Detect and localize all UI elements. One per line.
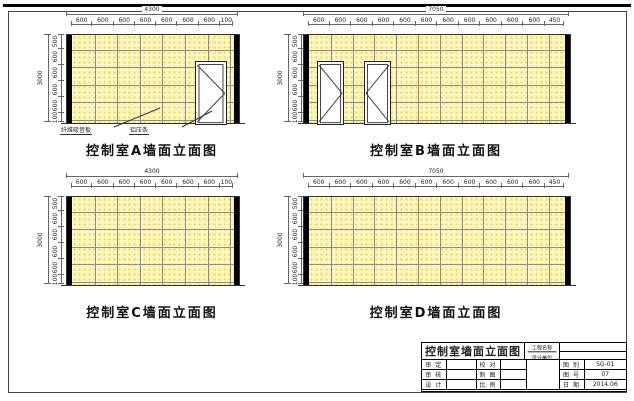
dim-segment: 600: [199, 15, 220, 24]
dim-segment-label: 600: [442, 179, 453, 186]
grid-line: [418, 197, 419, 285]
dim-segment: 600: [459, 177, 481, 186]
grid-line: [353, 35, 354, 123]
panel-area: [309, 35, 565, 123]
title-block-grid: 审 定 校 对 图 别 SG-01 审 核 制 图 图 号 07 设 计 比 例…: [422, 360, 626, 390]
dim-segment: 500: [291, 34, 301, 49]
grid-line: [309, 50, 565, 51]
grid-line: [309, 67, 565, 68]
annotation-acoustic-panel: 纤维吸音板: [60, 127, 92, 135]
dim-width-total: 4300: [66, 6, 238, 15]
dim-segment: 450: [545, 15, 564, 24]
dim-segment: 600: [502, 177, 524, 186]
dim-segment-label: 600: [356, 179, 367, 186]
dim-segment: 600: [308, 177, 330, 186]
dim-height-total-label: 3000: [37, 70, 44, 85]
dim-segment-label: 600: [399, 17, 410, 24]
dim-segment-label: 100: [53, 112, 60, 123]
dim-segment-label: 600: [118, 17, 129, 24]
dim-segment-label: 600: [529, 179, 540, 186]
elevation-a-caption: 控制室A墙面立面图: [66, 140, 238, 159]
left-segment-dims: 500600600600600100: [291, 196, 302, 284]
designed-value: [446, 380, 476, 390]
grid-line: [396, 197, 397, 285]
dim-segment-label: 600: [204, 179, 215, 186]
dim-segment-label: 600: [182, 179, 193, 186]
dim-segment-label: 600: [356, 17, 367, 24]
title-block-project-labels: 工程名称 设计单位: [525, 343, 560, 359]
dim-segment: 600: [291, 227, 301, 243]
grid-line: [527, 197, 528, 285]
dim-segment: 600: [416, 177, 438, 186]
dim-segment: 600: [156, 177, 177, 186]
dim-segment: 600: [437, 15, 459, 24]
date-value: 2014.06: [584, 380, 626, 390]
dim-segment-label: 600: [399, 179, 410, 186]
dim-segment-label: 600: [161, 17, 172, 24]
grid-line: [72, 229, 234, 230]
dim-segment-label: 600: [293, 100, 300, 111]
dim-segment-label: 600: [53, 100, 60, 111]
dim-height-total: 3000: [38, 196, 49, 284]
dim-segment-label: 600: [161, 179, 172, 186]
dim-segment-label: 600: [293, 83, 300, 94]
approved-label: 审 定: [422, 360, 446, 370]
dim-segment: 600: [394, 177, 416, 186]
date-label: 日 期: [559, 380, 584, 390]
dim-segment-label: 600: [182, 17, 193, 24]
dim-segment: 600: [480, 15, 502, 24]
dim-width-total: 7050: [303, 168, 569, 177]
dim-height-total-label: 3000: [277, 70, 284, 85]
wall-elevation-view: [303, 196, 571, 286]
dim-segment: 500: [51, 196, 61, 211]
drawing-no-value: 07: [584, 370, 626, 380]
drawing-type-value: SG-01: [584, 360, 626, 370]
dim-segment-label: 600: [53, 67, 60, 78]
dim-segment-label: 600: [97, 17, 108, 24]
dim-segment: 600: [92, 15, 113, 24]
dim-segment-label: 500: [53, 198, 60, 209]
panel-area: [309, 197, 565, 285]
dim-segment: 600: [459, 15, 481, 24]
grid-line: [309, 282, 565, 283]
elevation-b-caption: 控制室B墙面立面图: [303, 140, 569, 159]
dim-segment-label: 100: [221, 17, 232, 24]
grid-line: [309, 212, 565, 213]
dim-segment: 600: [308, 15, 330, 24]
annotation-aluminum-strip: 铝压条: [129, 127, 149, 135]
design-unit-label: 设计单位: [528, 354, 557, 362]
dim-width-total-label: 7050: [426, 168, 445, 175]
dim-segment: 600: [51, 243, 61, 259]
project-name-value: [560, 343, 626, 352]
grid-line: [95, 197, 96, 285]
dim-segment: 600: [373, 15, 395, 24]
checked-label: 校 对: [476, 360, 500, 370]
dim-segment-label: 600: [293, 245, 300, 256]
dim-segment: 100: [291, 275, 301, 284]
top-segment-dims: 600600600600600600600100: [71, 177, 233, 187]
grid-line: [72, 247, 234, 248]
dim-segment-label: 500: [53, 36, 60, 47]
floor-line: [298, 285, 576, 286]
elevation-wall-b: 7050 60060060060060060060060060060060045…: [276, 6, 582, 166]
dim-segment-label: 600: [140, 179, 151, 186]
dim-segment-label: 100: [221, 179, 232, 186]
dim-segment-label: 600: [529, 17, 540, 24]
wall-elevation-view: [66, 196, 240, 286]
dim-width-total: 4300: [66, 168, 238, 177]
dim-segment-label: 450: [549, 179, 560, 186]
grid-line: [140, 197, 141, 285]
dim-segment: 600: [480, 177, 502, 186]
elevation-c-caption: 控制室C墙面立面图: [66, 302, 238, 321]
dim-segment-label: 600: [97, 179, 108, 186]
grid-line: [72, 50, 234, 51]
grid-line: [162, 197, 163, 285]
dim-segment: 600: [135, 15, 156, 24]
drawing-title: 控制室墙面立面图: [422, 343, 525, 359]
dim-segment: 500: [291, 196, 301, 211]
grid-line: [505, 197, 506, 285]
grid-line: [72, 212, 234, 213]
floor-line: [61, 285, 245, 286]
dim-segment-label: 600: [293, 229, 300, 240]
grid-line: [440, 197, 441, 285]
dim-segment-label: 600: [507, 179, 518, 186]
drawing-type-label: 图 别: [559, 360, 584, 370]
title-block-project-values: [560, 343, 626, 359]
dim-segment-label: 600: [313, 179, 324, 186]
dim-segment: 600: [330, 15, 352, 24]
dim-segment-label: 600: [76, 17, 87, 24]
column-strip-right: [234, 197, 239, 285]
dim-height-total: 3000: [38, 34, 49, 122]
left-segment-dims: 500600600600600100: [291, 34, 302, 122]
dim-segment: 600: [291, 211, 301, 227]
scale-label: 比 例: [476, 380, 500, 390]
drafted-label: 制 图: [476, 370, 500, 380]
dim-height-total-label: 3000: [37, 232, 44, 247]
dim-width-total-label: 7050: [426, 6, 445, 13]
dim-segment-label: 600: [335, 17, 346, 24]
elevation-d-caption: 控制室D墙面立面图: [303, 302, 569, 321]
grid-line: [230, 197, 231, 285]
dim-segment: 600: [502, 15, 524, 24]
dim-segment: 450: [545, 177, 564, 186]
dim-segment: 500: [51, 34, 61, 49]
dim-segment: 600: [291, 49, 301, 65]
dim-segment-label: 600: [421, 179, 432, 186]
dim-segment: 600: [523, 15, 545, 24]
dim-segment: 100: [51, 113, 61, 122]
dim-width-total-label: 4300: [142, 6, 161, 13]
dim-segment: 600: [114, 177, 135, 186]
elevation-wall-a: 4300 600600600600600600600100 3000 50060…: [36, 6, 248, 166]
dim-segment-label: 600: [53, 83, 60, 94]
project-name-label: 工程名称: [528, 344, 557, 353]
dim-segment: 600: [177, 177, 198, 186]
dim-segment-label: 100: [293, 274, 300, 285]
top-segment-dims: 600600600600600600600600600600600450: [308, 15, 564, 25]
dim-segment-label: 600: [204, 17, 215, 24]
title-block: 控制室墙面立面图 工程名称 设计单位 审 定 校 对 图 别 SG-01 审 核…: [421, 342, 627, 392]
checked-value: [500, 360, 526, 370]
dim-segment: 600: [416, 15, 438, 24]
grid-line: [309, 247, 565, 248]
dim-segment: 600: [291, 81, 301, 97]
dim-segment-label: 600: [293, 67, 300, 78]
reviewed-label: 审 核: [422, 370, 446, 380]
column-strip-right: [234, 35, 239, 123]
dim-segment-label: 600: [118, 179, 129, 186]
dim-segment: 100: [220, 177, 233, 186]
title-block-header: 控制室墙面立面图 工程名称 设计单位: [422, 343, 626, 360]
grid-line: [462, 197, 463, 285]
dim-width-total: 7050: [303, 6, 569, 15]
dim-segment-label: 600: [293, 213, 300, 224]
dim-segment-label: 600: [464, 179, 475, 186]
grid-line: [462, 35, 463, 123]
dim-segment: 600: [51, 49, 61, 65]
grid-line: [505, 35, 506, 123]
dim-segment: 600: [114, 15, 135, 24]
scale-value: [500, 380, 526, 390]
grid-line: [396, 35, 397, 123]
grid-line: [527, 35, 528, 123]
dim-segment: 600: [135, 177, 156, 186]
dim-segment-label: 600: [464, 17, 475, 24]
dim-segment-label: 600: [485, 179, 496, 186]
drafted-value: [500, 370, 526, 380]
dim-segment: 100: [291, 113, 301, 122]
dim-segment-label: 600: [421, 17, 432, 24]
panel-area: [72, 197, 234, 285]
grid-line: [549, 197, 550, 285]
dim-segment: 600: [51, 211, 61, 227]
dim-segment: 600: [92, 177, 113, 186]
dim-segment-label: 600: [53, 262, 60, 273]
dim-segment: 600: [51, 81, 61, 97]
grid-line: [374, 197, 375, 285]
grid-line: [483, 35, 484, 123]
grid-line: [440, 35, 441, 123]
dim-segment-label: 600: [335, 179, 346, 186]
dim-segment-label: 600: [293, 262, 300, 273]
dim-segment: 600: [351, 177, 373, 186]
dim-segment-label: 600: [485, 17, 496, 24]
dim-segment: 600: [156, 15, 177, 24]
left-segment-dims: 500600600600600100: [51, 196, 62, 284]
top-segment-dims: 600600600600600600600600600600600450: [308, 177, 564, 187]
reviewed-value: [446, 370, 476, 380]
column-strip-right: [565, 197, 570, 285]
grid-line: [309, 85, 565, 86]
dim-segment-label: 600: [293, 51, 300, 62]
dim-segment: 600: [51, 227, 61, 243]
dim-segment-label: 600: [53, 51, 60, 62]
dim-segment: 600: [351, 15, 373, 24]
dim-segment-label: 600: [378, 17, 389, 24]
dim-segment-label: 500: [293, 198, 300, 209]
top-segment-dims: 600600600600600600600100: [71, 15, 233, 25]
grid-line: [208, 197, 209, 285]
dim-segment: 600: [51, 65, 61, 81]
leader-lines: [66, 104, 226, 128]
dim-segment-label: 450: [549, 17, 560, 24]
dim-segment-label: 500: [293, 36, 300, 47]
dim-segment-label: 100: [293, 112, 300, 123]
grid-line: [309, 102, 565, 103]
column-strip-right: [565, 35, 570, 123]
approved-value: [446, 360, 476, 370]
dim-segment-label: 600: [313, 17, 324, 24]
elevation-wall-d: 7050 60060060060060060060060060060060045…: [276, 168, 582, 328]
grid-line: [117, 197, 118, 285]
grid-line: [309, 120, 565, 121]
dim-segment: 600: [71, 177, 92, 186]
dim-segment: 100: [220, 15, 233, 24]
dim-height-total: 3000: [278, 34, 289, 122]
designed-label: 设 计: [422, 380, 446, 390]
dim-segment: 600: [177, 15, 198, 24]
dim-segment: 100: [51, 275, 61, 284]
wall-elevation-view: [303, 34, 571, 124]
dim-segment: 600: [291, 243, 301, 259]
grid-line: [309, 229, 565, 230]
grid-line: [483, 197, 484, 285]
grid-line: [549, 35, 550, 123]
dim-segment-label: 600: [140, 17, 151, 24]
grid-line: [72, 264, 234, 265]
dim-segment-label: 600: [76, 179, 87, 186]
dim-segment: 600: [199, 177, 220, 186]
dim-segment-label: 600: [53, 213, 60, 224]
design-unit-value: [560, 352, 626, 360]
dim-segment-label: 600: [442, 17, 453, 24]
dim-segment-label: 600: [507, 17, 518, 24]
dim-height-total-label: 3000: [277, 232, 284, 247]
grid-line: [418, 35, 419, 123]
dim-segment-label: 100: [53, 274, 60, 285]
dim-segment: 600: [291, 65, 301, 81]
dim-height-total: 3000: [278, 196, 289, 284]
grid-line: [353, 197, 354, 285]
dim-segment: 600: [71, 15, 92, 24]
dim-width-total-label: 4300: [142, 168, 161, 175]
grid-line: [72, 282, 234, 283]
door: [364, 61, 391, 125]
dim-segment: 600: [394, 15, 416, 24]
dim-segment-label: 600: [53, 229, 60, 240]
dim-segment: 600: [330, 177, 352, 186]
drawing-sheet: { "colors": { "panel_fill": "#fcf8d8", "…: [0, 0, 634, 401]
door: [317, 61, 344, 125]
dim-segment-label: 600: [378, 179, 389, 186]
dim-segment: 600: [373, 177, 395, 186]
grid-line: [331, 197, 332, 285]
grid-line: [230, 35, 231, 123]
dim-segment: 600: [523, 177, 545, 186]
left-segment-dims: 500600600600600100: [51, 34, 62, 122]
grid-line: [185, 197, 186, 285]
signature-area: [526, 360, 559, 390]
dim-segment: 600: [437, 177, 459, 186]
dim-segment-label: 600: [53, 245, 60, 256]
drawing-no-label: 图 号: [559, 370, 584, 380]
elevation-wall-c: 4300 600600600600600600600100 3000 50060…: [36, 168, 248, 328]
grid-line: [309, 264, 565, 265]
